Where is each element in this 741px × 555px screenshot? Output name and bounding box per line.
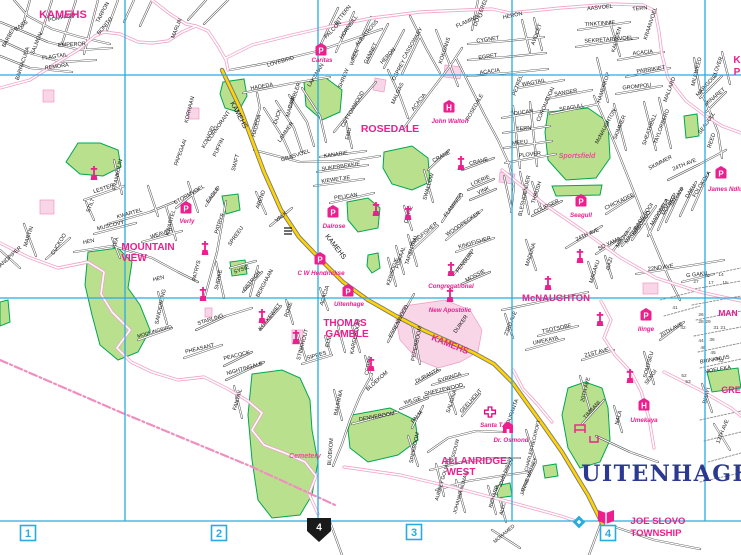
block-number: 15 xyxy=(722,280,728,286)
route-marker-diamond-icon xyxy=(573,516,586,529)
area-label: MOUNTAIN xyxy=(121,242,174,253)
area-label: UITENHAGE xyxy=(581,461,741,487)
street-label: PATRYS xyxy=(192,259,203,281)
poi-label: New Apostolic xyxy=(429,307,472,314)
poi-label: Congregational xyxy=(428,283,474,290)
area-label: P xyxy=(734,67,741,78)
street-label: DURANTA xyxy=(506,398,521,425)
street-label: TERN xyxy=(516,125,532,133)
street-label: ACACIA xyxy=(632,49,653,57)
street-label: PATRYS xyxy=(214,212,226,234)
area-label: THOMAS xyxy=(323,318,367,329)
map-canvas: BASSBARBELSALMONPOMPANOEMPERORFLAGTAILRE… xyxy=(0,0,741,555)
landmark-area xyxy=(373,78,386,92)
street-label: PARRIKIET xyxy=(636,65,666,75)
area-label: MAN xyxy=(718,308,737,318)
map-label: P xyxy=(643,311,649,320)
street-label: SWIFT xyxy=(231,153,241,172)
area-label: KAMEHS xyxy=(39,9,87,21)
block-number: 45 xyxy=(710,350,716,356)
street-label: REED xyxy=(707,132,717,148)
block-number: 27 xyxy=(693,279,699,285)
block-number: 44 xyxy=(698,338,704,344)
block-number: 31 xyxy=(713,325,719,331)
church-icon xyxy=(448,262,455,276)
poi-label: Caritas xyxy=(312,57,334,64)
street-label: DURANTA xyxy=(415,367,441,385)
map-label: P xyxy=(330,208,336,217)
area-label: VIEW xyxy=(121,253,147,264)
map-label: 4 xyxy=(605,528,612,540)
street-label: TSOTSOBE xyxy=(542,323,573,335)
church-icon xyxy=(545,276,552,290)
street-label: WREN xyxy=(349,49,361,67)
poi-label: Verly xyxy=(180,218,195,225)
street-label: EMU xyxy=(345,127,353,140)
street-label: HADEDA xyxy=(250,82,274,92)
street-label: SPREEU xyxy=(227,225,245,247)
parking-icon: P xyxy=(641,308,652,321)
rail-crossing-icon xyxy=(284,228,292,234)
street-label: ALEC xyxy=(498,501,507,516)
street-label: PENGUIN xyxy=(455,251,475,274)
street-label: WAGTAIL xyxy=(521,78,546,88)
street-label: MACAW xyxy=(285,95,296,118)
street-label: BLESHOENDER xyxy=(518,175,533,217)
street-label: GANNET xyxy=(363,41,379,65)
block-number: 42 xyxy=(680,325,686,331)
landmark-area xyxy=(643,283,658,294)
area-label: JOE SLOVO xyxy=(631,516,686,527)
park-area xyxy=(684,114,699,138)
grid-index-box: 3 xyxy=(407,525,422,540)
street-label: DUCK xyxy=(273,108,284,125)
street-label: CASSOWARY xyxy=(402,26,425,60)
area-label: WEST xyxy=(447,467,476,478)
street-label: PALM xyxy=(410,410,424,425)
street-label: SEKRETARISVOEL xyxy=(584,35,633,44)
street-label: PAPEGAAI xyxy=(174,138,189,166)
map-label: P xyxy=(578,197,584,206)
poi-label: James Ndlula xyxy=(708,186,741,193)
map-label: P xyxy=(318,46,324,55)
street-label: SALIGNA xyxy=(446,389,459,414)
street-label: 21ST AVE xyxy=(584,347,610,359)
block-number: 41 xyxy=(672,305,678,311)
poi-label: Ilinge xyxy=(638,326,655,333)
landmark-area xyxy=(43,90,54,102)
park-area xyxy=(248,370,318,518)
hospital-icon: H xyxy=(444,100,455,113)
street-label: LOVEBIRD xyxy=(267,55,295,68)
street-label: CHICKADEE xyxy=(604,192,636,212)
park-area xyxy=(383,146,430,190)
street-label: SUKERBEKKIE xyxy=(321,161,361,172)
map-label: 2 xyxy=(216,528,222,540)
street-label: KANARIE xyxy=(323,150,348,159)
block-number: 28 xyxy=(698,319,704,325)
area-label: McNAUGHTON xyxy=(522,293,590,304)
area-label: ROSEDALE xyxy=(361,123,419,135)
block-number: 26 xyxy=(698,312,704,318)
block-number: 21 xyxy=(720,325,726,331)
landmark-area xyxy=(40,200,54,214)
map-label: 1 xyxy=(25,528,31,540)
block-number: 53 xyxy=(685,379,691,385)
street-label: ROSE xyxy=(284,301,295,318)
park-area xyxy=(543,464,558,478)
street-label: 22ND AVE xyxy=(648,263,675,273)
area-label: GRE xyxy=(721,385,741,395)
poi-label: Uitenhage xyxy=(334,301,364,308)
street-label: MADUNA xyxy=(525,242,538,267)
park-area xyxy=(545,108,610,180)
map-label: P xyxy=(718,169,724,178)
block-number: 32 xyxy=(718,358,724,364)
church-icon xyxy=(577,249,584,263)
street-label: ACACIA xyxy=(411,92,429,112)
parking-icon: P xyxy=(316,43,327,56)
street-label: WEAVER xyxy=(150,228,174,241)
grid-index-box: 2 xyxy=(212,526,227,541)
landmark-area xyxy=(205,308,212,317)
street-label: MILKWEED xyxy=(691,57,704,87)
street-label: MARLIN xyxy=(170,18,183,40)
street-label: HAMERKOP xyxy=(596,71,612,103)
street-label: CRANE xyxy=(432,150,452,164)
map-label: P xyxy=(345,287,351,296)
street-label: MOHAMED xyxy=(492,523,516,545)
street-label: MOSSIE xyxy=(465,268,487,283)
street-label: AASVOEL xyxy=(587,4,613,13)
poi-label: Seagull xyxy=(570,212,592,219)
street-label: SHREW xyxy=(337,67,351,89)
grid-index-box: 1 xyxy=(21,526,36,541)
block-number: 29 xyxy=(705,319,711,325)
area-label: Sportsfield xyxy=(559,153,596,160)
area-label: GAMBLE xyxy=(325,329,369,340)
street-label: SKIMMER xyxy=(612,115,627,141)
street-label: KAMEHS xyxy=(323,233,347,261)
street-label: TERN xyxy=(632,5,648,13)
block-number: 36 xyxy=(709,337,715,343)
street-label: SKIMMER xyxy=(648,154,674,171)
street-label: SANGER xyxy=(554,88,578,98)
block-number: 17 xyxy=(708,280,714,286)
map-label: P xyxy=(183,204,189,213)
hospital-icon: H xyxy=(639,398,650,411)
street-label: EAGLE xyxy=(205,186,221,204)
street-label: AVOCET xyxy=(530,23,543,47)
street-label: PUFFIN xyxy=(212,137,226,158)
street-label: GEELHOUT xyxy=(459,388,484,415)
block-number: 14 xyxy=(718,272,724,278)
street-label: HEN xyxy=(152,275,165,284)
church-icon xyxy=(259,309,266,323)
street-label: HERON xyxy=(379,47,397,66)
street-label: CRANE xyxy=(469,157,489,168)
church-icon xyxy=(458,156,465,170)
street-label: HEN xyxy=(82,238,95,246)
parking-icon: P xyxy=(328,205,339,218)
park-area xyxy=(367,253,380,273)
grid-index-box: 4 xyxy=(601,526,616,541)
church-icon xyxy=(447,288,454,302)
poi-label: C W Hendrickse xyxy=(297,270,345,277)
poi-label: John Walton xyxy=(431,118,468,125)
map-label: H xyxy=(641,401,647,410)
area-label: ALLANRIDGE xyxy=(441,456,507,467)
red-cross-icon xyxy=(485,407,496,417)
street-label: KINGFISHER xyxy=(458,236,492,251)
route-arrow-marker: 4 xyxy=(307,518,331,542)
area-label: TOWNSHIP xyxy=(630,528,682,539)
map-label: 3 xyxy=(411,527,417,539)
street-label: CUCKOO xyxy=(50,232,68,256)
church-icon xyxy=(202,241,209,255)
street-label: FLAMINGO xyxy=(443,192,466,219)
poi-label: Dr. Osmond xyxy=(493,437,528,444)
block-number: 52 xyxy=(681,373,687,379)
map-label: P xyxy=(317,255,323,264)
area-label: Cemetery xyxy=(289,453,322,460)
map-label: 4 xyxy=(316,523,322,534)
map-label: H xyxy=(446,103,452,112)
park-area xyxy=(552,185,602,196)
area-label: K xyxy=(733,55,741,66)
church-icon xyxy=(597,312,604,326)
parking-icon: P xyxy=(716,166,727,179)
street-label: MALGAS xyxy=(391,82,406,106)
street-label: HADEDA xyxy=(251,114,263,138)
street-map: BASSBARBELSALMONPOMPANOEMPERORFLAGTAILRE… xyxy=(0,0,741,555)
poi-label: Dalrose xyxy=(323,223,346,230)
street-label: 24TH AVE xyxy=(672,157,698,172)
park-area xyxy=(0,300,10,326)
poi-label: Umekaya xyxy=(630,417,658,424)
street-label: SNEEZEWOOD xyxy=(424,382,464,397)
street-label: EGRET xyxy=(478,53,498,62)
